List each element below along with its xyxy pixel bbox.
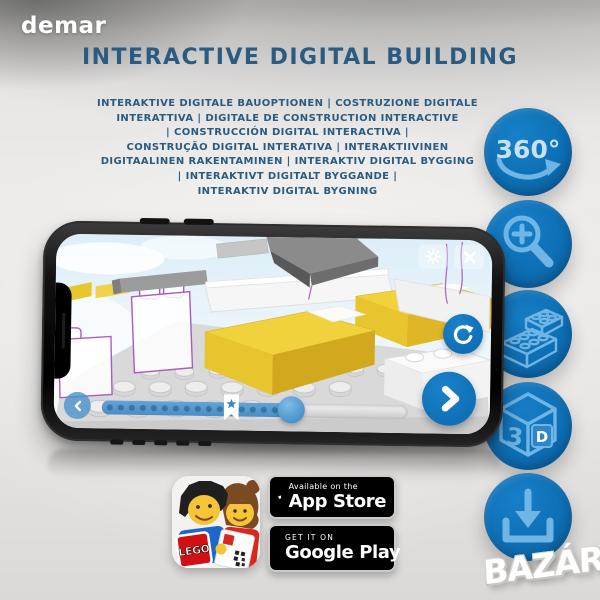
earpiece-speaker — [62, 313, 66, 349]
lego-app-icon[interactable]: LEGO — [172, 476, 260, 568]
lego-minifigures-art: LEGO — [172, 476, 260, 568]
star-icon — [226, 398, 237, 409]
subtitle-line: INTERATTIVA | DIGITALE DE CONSTRUCTION I… — [15, 112, 560, 127]
google-play-tagline: GET IT ON — [285, 534, 400, 542]
subtitle-line: INTERAKTIVE DIGITALE BAUOPTIONEN | COSTR… — [15, 97, 560, 112]
app-store-label: App Store — [289, 493, 386, 511]
subtitle-line: INTERAKTIV DIGITAL BYGNING — [15, 185, 560, 200]
speaker-hole — [154, 440, 167, 445]
chevron-left-icon — [69, 397, 85, 413]
speaker-hole — [132, 440, 145, 445]
subtitle-line: CONSTRUÇÃO DIGITAL INTERATIVA | INTERAKT… — [15, 141, 560, 156]
multilingual-subtitle: INTERAKTIVE DIGITALE BAUOPTIONEN | COSTR… — [15, 97, 560, 199]
settings-button[interactable] — [418, 244, 448, 268]
feature-circle-360: 360° — [484, 108, 572, 196]
close-icon — [462, 249, 477, 264]
gear-icon — [424, 247, 442, 265]
subtitle-line: | INTERAKTIVT DIGITALT BYGGANDE | — [15, 170, 560, 185]
rotate-icon — [451, 322, 475, 346]
app-store-badge[interactable]: Available on the App Store — [268, 475, 396, 519]
rotate-360-icon: 360° — [484, 108, 572, 196]
speaker-hole — [110, 439, 123, 444]
google-play-badge[interactable]: GET IT ON Google Play — [268, 524, 396, 572]
3d-label-3: 3 — [505, 422, 525, 452]
apple-icon — [278, 483, 282, 511]
app-screen — [54, 234, 493, 435]
page-title: INTERACTIVE DIGITAL BUILDING — [0, 45, 600, 70]
volume-button — [184, 219, 214, 225]
volume-button — [140, 218, 170, 224]
3d-label-d: D — [536, 428, 548, 446]
app-store-tagline: Available on the — [289, 483, 386, 491]
close-button[interactable] — [454, 245, 484, 269]
slider-progress-fill — [102, 400, 292, 417]
smartphone — [40, 220, 505, 447]
subtitle-line: | CONSTRUCCIÓN DIGITAL INTERACTIVA | — [15, 126, 560, 141]
360-label: 360° — [496, 135, 561, 164]
speaker-hole — [198, 441, 211, 446]
speaker-hole — [176, 440, 189, 445]
google-play-label: Google Play — [285, 544, 400, 562]
brand-logo: demar — [21, 13, 106, 39]
chevron-right-icon — [434, 384, 464, 414]
promo-image: demar INTERACTIVE DIGITAL BUILDING INTER… — [0, 0, 600, 600]
phone-notch — [54, 282, 72, 378]
subtitle-line: DIGITAALINEN RAKENTAMINEN | INTERAKTIV D… — [15, 155, 560, 170]
